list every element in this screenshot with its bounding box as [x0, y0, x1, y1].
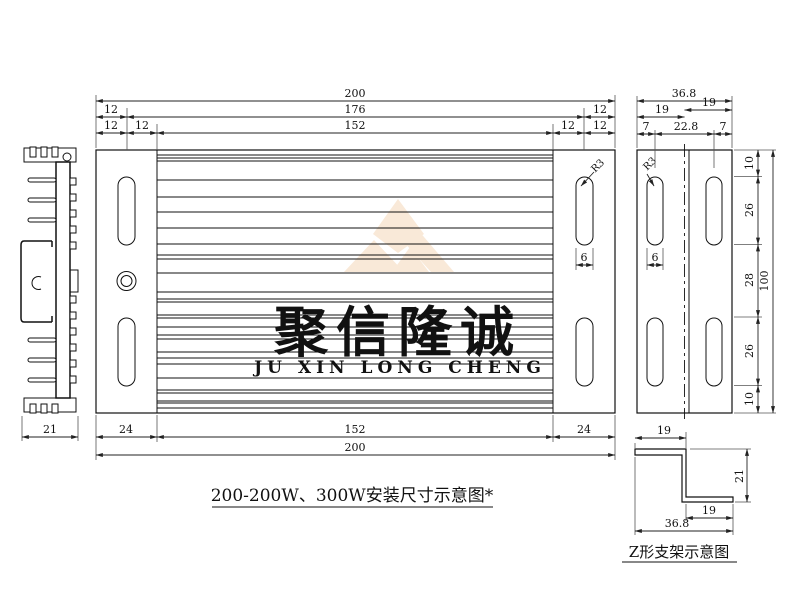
- company-logo-icon: [344, 199, 454, 272]
- heatsink-profile-view: 21: [21, 147, 78, 441]
- profile-middle-tab: [70, 270, 78, 292]
- screw-hole-outer: [117, 272, 136, 291]
- dim-main-overall-top: 200: [345, 87, 366, 100]
- side-slot-right-top: [706, 177, 722, 245]
- main-view: R3 6 200 12 176 12 12 12 152 12 12: [96, 87, 615, 460]
- profile-spine: [56, 162, 70, 398]
- dim-main-offset-left3: 12: [135, 119, 149, 132]
- dim-side-top: 10: [743, 156, 756, 170]
- dim-bracket-height: 21: [733, 469, 746, 483]
- dim-side-flange-left: 19: [655, 103, 669, 116]
- side-slot-left-bottom: [647, 318, 663, 386]
- dim-bracket-top-leg: 19: [657, 424, 671, 437]
- screw-hole-inner: [121, 276, 132, 287]
- dim-main-inner: 176: [345, 103, 366, 116]
- dim-profile-width: 21: [43, 423, 57, 436]
- profile-chamber: [21, 241, 52, 322]
- dim-bracket-overall: 36.8: [665, 517, 690, 530]
- dim-side-edge-right: 7: [720, 120, 727, 133]
- dim-side-slot-width: 6: [652, 251, 659, 264]
- main-caption: 200-200W、300W安装尺寸示意图*: [211, 486, 494, 506]
- side-view: R3 6 36.8 19 19 7 22.8 7 10: [637, 87, 776, 419]
- side-slot-right-bottom: [706, 318, 722, 386]
- watermark-chinese-text: 聚信隆诚: [273, 300, 522, 364]
- z-bracket-view: 19 21 19 36.8: [635, 424, 751, 535]
- dim-main-offset-left1: 12: [104, 103, 118, 116]
- dim-main-flange-left: 24: [119, 423, 133, 436]
- dim-side-center: 22.8: [674, 120, 699, 133]
- dim-main-overall-bottom: 200: [345, 441, 366, 454]
- dim-side-bottom: 10: [743, 392, 756, 406]
- dim-side-flange-right: 19: [702, 96, 716, 109]
- slot-left-bottom: [118, 318, 135, 386]
- dim-side-edge-left: 7: [643, 120, 650, 133]
- dim-main-offset-left2: 12: [104, 119, 118, 132]
- dim-main-offset-right3: 12: [593, 119, 607, 132]
- watermark: 聚信隆诚 JU XIN LONG CHENG: [252, 199, 546, 378]
- dim-main-offset-right2: 12: [561, 119, 575, 132]
- profile-right-teeth: [70, 178, 76, 383]
- slot-right-bottom: [576, 318, 593, 386]
- drawing-canvas: 聚信隆诚 JU XIN LONG CHENG 21: [0, 0, 800, 600]
- slot-right-top: [576, 177, 593, 245]
- dim-main-slot-span-top: 152: [345, 119, 366, 132]
- profile-top-hook: [63, 153, 71, 161]
- slot-left-top: [118, 177, 135, 245]
- dim-main-fillet: R3: [589, 157, 607, 175]
- dim-side-height: 100: [758, 271, 771, 292]
- dim-main-offset-right1: 12: [593, 103, 607, 116]
- z-bracket-outline: [635, 449, 733, 502]
- side-slot-left-top: [647, 177, 663, 245]
- dim-side-middle: 28: [743, 273, 756, 287]
- bracket-caption: Z形支架示意图: [629, 543, 729, 561]
- dim-main-slot-span-bottom: 152: [345, 423, 366, 436]
- dim-side-lower: 26: [743, 344, 756, 358]
- dim-side-upper: 26: [743, 203, 756, 217]
- dim-bracket-bottom-leg: 19: [702, 504, 716, 517]
- dim-side-fillet: R3: [641, 155, 659, 173]
- watermark-english-text: JU XIN LONG CHENG: [252, 358, 546, 378]
- dim-main-flange-right: 24: [577, 423, 591, 436]
- dim-side-overall: 36.8: [672, 87, 697, 100]
- profile-screw-boss: [32, 277, 41, 290]
- dim-main-slot-width: 6: [581, 251, 588, 264]
- cad-drawing: 聚信隆诚 JU XIN LONG CHENG 21: [0, 0, 800, 600]
